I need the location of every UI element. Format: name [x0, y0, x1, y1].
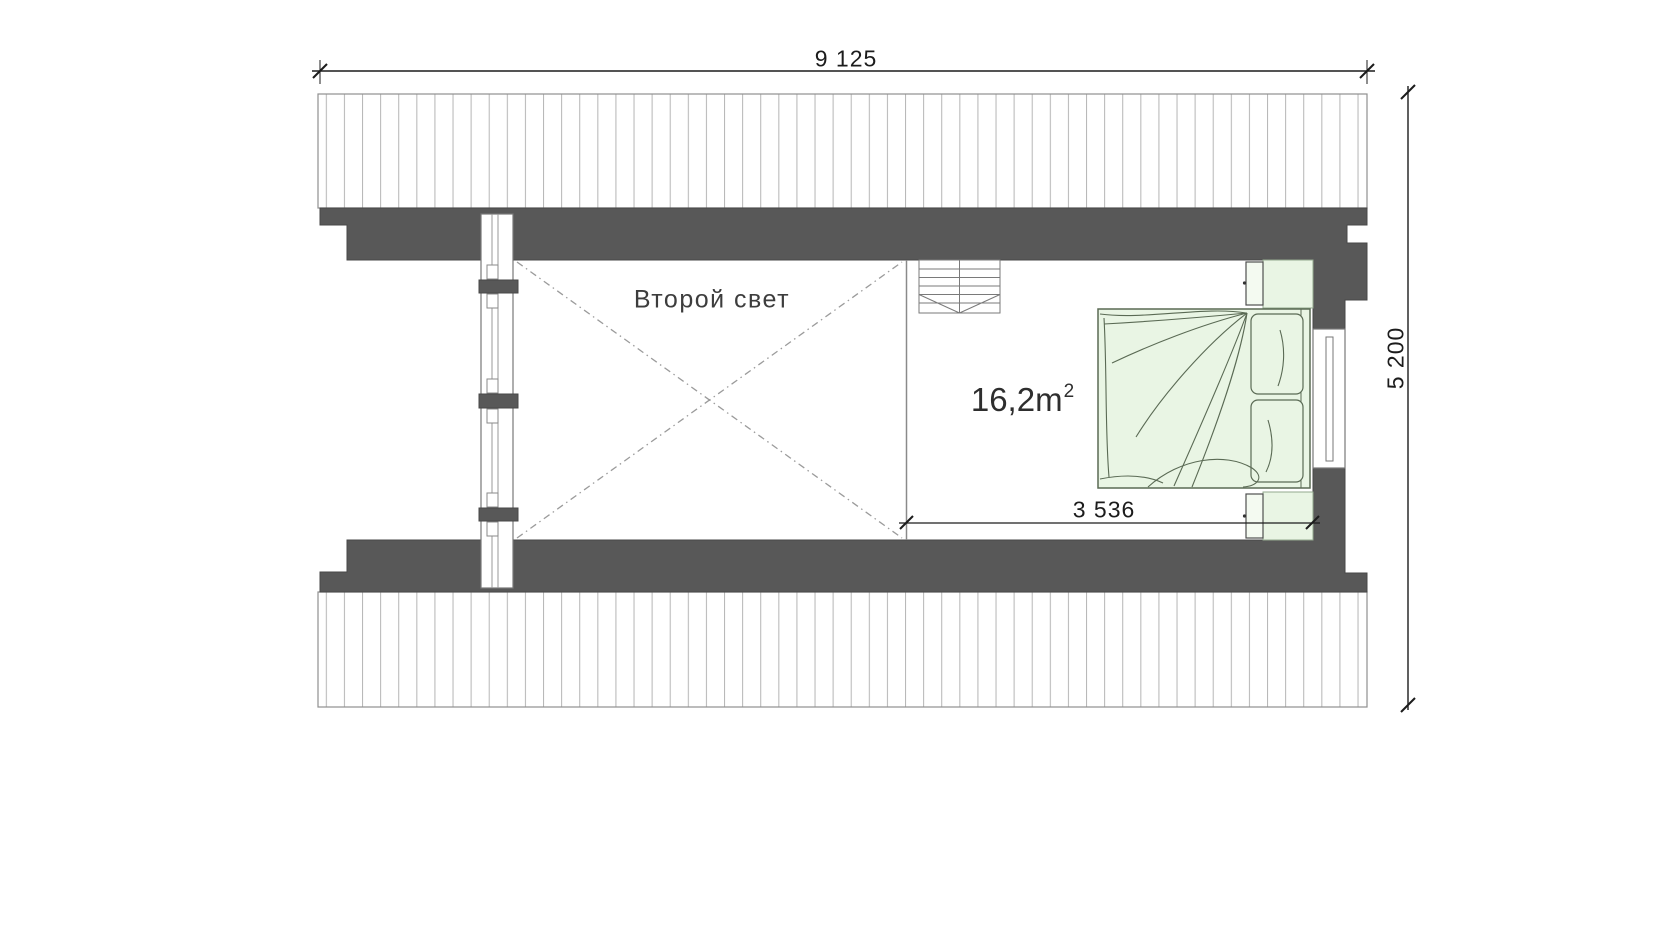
wardrobe-top: [1263, 260, 1313, 308]
dimension-label-bedroom-width: 3 536: [1073, 497, 1136, 524]
glazed-wall-left: [479, 214, 518, 588]
window-right-glazing: [1326, 337, 1333, 461]
roof-hatch-top: [318, 94, 1367, 208]
nightstand-bottom: [1246, 494, 1263, 538]
floor-plan-drawing: [0, 0, 1680, 945]
joint: [487, 409, 498, 423]
window-right: [1313, 329, 1345, 468]
room-area-superscript: 2: [1064, 381, 1075, 402]
roof-top-hatch: [318, 94, 1367, 208]
nightstand-top: [1246, 262, 1263, 305]
roof-bottom-hatch: [318, 592, 1367, 707]
joint: [487, 379, 498, 393]
bed: [1098, 309, 1310, 488]
staircase: [919, 260, 1000, 313]
floor-plan-page: 9 125 5 200 3 536 Второй свет 16,2m2: [0, 0, 1680, 945]
room-area-value: 16,2m: [971, 381, 1063, 418]
wardrobe-bottom: [1263, 492, 1313, 540]
joint: [487, 522, 498, 536]
room-label-void: Второй свет: [634, 286, 790, 315]
nightstand-handle: [1243, 514, 1246, 517]
pillow: [1251, 400, 1303, 482]
joint: [487, 294, 498, 308]
nightstand-handle: [1243, 281, 1246, 284]
joint: [487, 265, 498, 279]
dimension-label-width: 9 125: [815, 46, 878, 73]
roof-hatch-bottom: [318, 592, 1367, 707]
mullion-3: [479, 508, 518, 521]
room-area-label: 16,2m2: [971, 381, 1073, 419]
mullion-1: [479, 280, 518, 293]
pillow: [1251, 314, 1303, 394]
mullion-2: [479, 394, 518, 408]
dimension-label-depth: 5 200: [1383, 327, 1410, 390]
joint: [487, 493, 498, 507]
